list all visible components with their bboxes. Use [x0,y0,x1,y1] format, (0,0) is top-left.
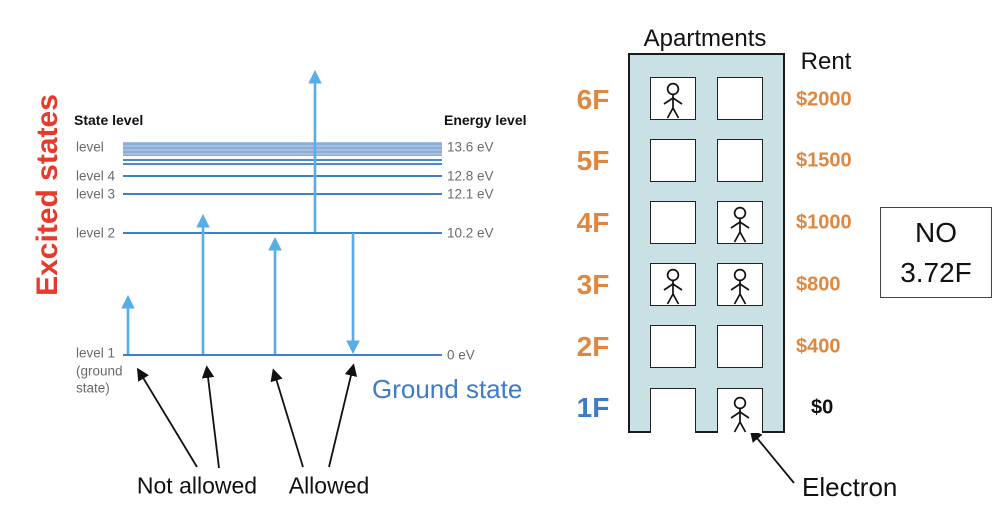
level-label-2: level 2 [76,226,115,241]
rent-value-5f: $1500 [796,150,852,173]
rent-value-6f: $2000 [796,89,852,112]
electron-pointer [752,432,794,483]
level-label-1-sub1: (ground [76,364,123,379]
energy-10-2: 10.2 eV [447,226,494,241]
energy-0: 0 eV [447,348,475,363]
person-icon [658,81,688,119]
window-1f-right [717,388,763,433]
floor-label-4f: 4F [573,207,613,239]
floor-label-2f: 2F [573,331,613,363]
apartments-title: Apartments [644,25,767,53]
state-level-header: State level [74,112,143,128]
not-allowed-label: Not allowed [137,473,257,500]
372f-text: 3.72F [900,253,972,293]
no-372f-box: NO 3.72F [880,207,992,298]
rent-value-2f: $400 [796,336,841,359]
no-text: NO [915,213,957,253]
floor-label-1f: 1F [573,392,613,424]
not-allowed-pointer-2 [207,369,219,468]
window-5f-left [650,139,696,182]
energy-level-header: Energy level [444,112,527,128]
window-2f-left [650,325,696,368]
window-4f-right [717,201,763,244]
person-icon [658,267,688,305]
person-icon [725,205,755,243]
rent-value-1f: $0 [811,397,833,420]
arrows-layer [0,0,1002,520]
allowed-pointer-1 [274,372,303,467]
not-allowed-pointer-1 [139,371,197,467]
window-2f-right [717,325,763,368]
window-6f-left [650,77,696,120]
window-1f-left [650,388,696,433]
level-3-line [123,193,442,195]
window-3f-left [650,263,696,306]
level-4-line [123,175,442,177]
floor-label-3f: 3F [573,269,613,301]
level-label-1: level 1 [76,346,115,361]
slide-canvas: Excited states State level Energy level … [0,0,1002,520]
person-icon [725,267,755,305]
ionization-band [123,142,442,156]
level-2-line [123,232,442,234]
level-1-line [123,354,442,356]
rent-value-4f: $1000 [796,212,852,235]
high-level-line [123,163,442,165]
high-level-line [123,159,442,161]
electron-label: Electron [802,472,897,503]
energy-12-8: 12.8 eV [447,169,494,184]
person-icon [725,395,755,433]
window-6f-right [717,77,763,120]
level-label-4: level 4 [76,169,115,184]
rent-header: Rent [801,48,852,76]
window-4f-left [650,201,696,244]
energy-12-1: 12.1 eV [447,187,494,202]
window-3f-right [717,263,763,306]
level-label-1-sub2: state) [76,381,110,396]
level-label-3: level 3 [76,187,115,202]
allowed-pointer-2 [329,367,353,467]
energy-13-6: 13.6 eV [447,140,494,155]
allowed-label: Allowed [289,473,370,500]
floor-label-5f: 5F [573,145,613,177]
window-5f-right [717,139,763,182]
ground-state-label: Ground state [372,374,522,405]
rent-value-3f: $800 [796,274,841,297]
level-label-ionization: level [76,140,104,155]
excited-states-title: Excited states [31,94,65,296]
floor-label-6f: 6F [573,84,613,116]
